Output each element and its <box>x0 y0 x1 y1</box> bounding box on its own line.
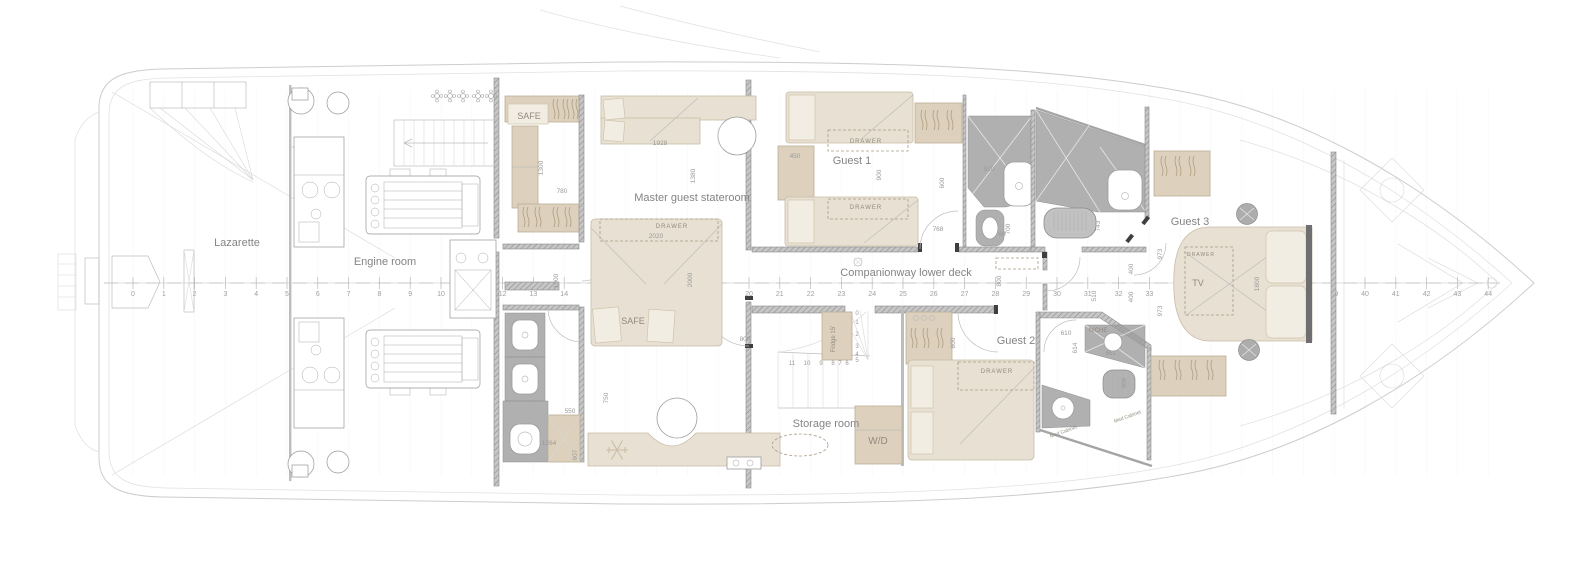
dim: 800 <box>950 337 957 348</box>
drawer-label: DRAWER <box>850 139 882 145</box>
dim: 68 <box>998 231 1006 238</box>
frame-number: 4 <box>254 291 258 298</box>
dim: 400 <box>1128 263 1135 274</box>
frame-number: 2 <box>193 291 197 298</box>
fuel-tank-port <box>294 137 344 247</box>
frame-number: 13 <box>530 291 538 298</box>
frame-number: 42 <box>1423 291 1431 298</box>
dim: 1800 <box>1254 276 1261 291</box>
dim: 973 <box>1157 248 1164 259</box>
bow-hatch-top <box>1360 158 1424 222</box>
frame-number: 8 <box>377 291 381 298</box>
engine-room-equipment <box>288 78 499 486</box>
bow-bulkhead <box>1331 152 1336 414</box>
dim: 768 <box>933 226 944 233</box>
room-label-engine-room: Engine room <box>354 256 416 268</box>
frame-number: 1 <box>162 291 166 298</box>
stair-step-number: 5 <box>855 358 859 364</box>
stern-stairs <box>150 82 253 182</box>
room-label-master: Master guest stateroom <box>634 192 750 204</box>
toilet-icon <box>1103 370 1135 398</box>
frame-number: 22 <box>807 291 815 298</box>
frame-number: 24 <box>868 291 876 298</box>
frame-number: 7 <box>347 291 351 298</box>
room-label-lazarette: Lazarette <box>214 237 260 249</box>
frame-number: 25 <box>899 291 907 298</box>
frame-number: 14 <box>560 291 568 298</box>
safe-label: SAFE <box>517 111 541 121</box>
fixture <box>727 457 761 469</box>
room-label-guest2: Guest 2 <box>997 335 1036 347</box>
dim: 700 <box>1005 223 1012 234</box>
frame-number: 26 <box>930 291 938 298</box>
dim: 510 <box>984 166 995 173</box>
frame-number: 21 <box>776 291 784 298</box>
dim: 900 <box>876 169 883 180</box>
safe-label: SAFE <box>621 316 645 326</box>
engine-room-stairs <box>394 120 498 166</box>
frame-number: 33 <box>1146 291 1154 298</box>
sink-icon <box>512 320 538 350</box>
dim: 400 <box>1128 291 1135 302</box>
deck-plan: 0123456789101112131415161718192021222324… <box>0 0 1580 562</box>
dim: 661 <box>1106 350 1117 357</box>
frame-number: 43 <box>1454 291 1462 298</box>
armchair <box>718 117 756 155</box>
guest1-bathroom <box>968 110 1035 247</box>
drawer-label: DRAWER <box>850 205 882 211</box>
dim: 614 <box>1072 342 1079 353</box>
frame-number: 28 <box>992 291 1000 298</box>
dayhead-door-arc <box>1046 257 1080 291</box>
sink-icon <box>512 364 538 394</box>
shelf <box>996 258 1038 269</box>
washer-dryer <box>855 406 902 464</box>
sink-icon <box>1004 162 1034 206</box>
frame-number: 40 <box>1361 291 1369 298</box>
med-cabinet-label: Med Cabinet <box>1113 409 1142 425</box>
fridge-label: Fridge 15' <box>831 326 837 353</box>
transom-locker <box>112 256 160 308</box>
stair-step-number: 11 <box>789 361 796 367</box>
stair-step-number: 8 <box>831 361 835 367</box>
stair-step-number: 0 <box>855 311 859 317</box>
headboard <box>1306 225 1312 343</box>
frame-number: 0 <box>131 291 135 298</box>
drawer-label: DRAWER <box>981 369 1013 375</box>
dim: 450 <box>790 153 801 160</box>
stair-landing <box>505 282 559 290</box>
stair-step-number: 3 <box>855 344 859 350</box>
dim: 1380 <box>690 168 697 183</box>
dim: 550 <box>565 408 576 415</box>
frame-number: 27 <box>961 291 969 298</box>
frame-number: 29 <box>1022 291 1030 298</box>
dim: 973 <box>1157 305 1164 316</box>
stair-step-number: 10 <box>804 361 811 367</box>
frame-number: 10 <box>437 291 445 298</box>
master-stateroom <box>588 80 780 488</box>
frame-number: 3 <box>223 291 227 298</box>
dim: 2020 <box>649 233 664 240</box>
dim: 2000 <box>687 272 694 287</box>
stair-step-number: 1 <box>855 320 859 326</box>
stool <box>1237 204 1258 225</box>
frame-number: 41 <box>1392 291 1400 298</box>
engine-port <box>366 169 480 234</box>
guest2-door-arc <box>958 312 998 352</box>
dim: 607 <box>572 449 579 460</box>
bath-wall <box>1031 110 1035 247</box>
dim: 800 <box>740 336 751 343</box>
frame-number: 12 <box>499 291 507 298</box>
frame-number: 30 <box>1053 291 1061 298</box>
bath-door-arc <box>548 308 582 342</box>
lazarette-bulkhead <box>289 85 291 481</box>
dim: 1300 <box>538 160 545 175</box>
room-label-companionway: Companionway lower deck <box>840 267 972 279</box>
engine-starboard <box>366 330 480 395</box>
stair-step-number: 6 <box>845 361 849 367</box>
toilet-icon <box>510 424 540 454</box>
closet-bulkhead <box>579 95 584 242</box>
niche-label: NICHE <box>1089 328 1108 334</box>
room-label-storage: Storage room <box>793 418 860 430</box>
drawer-label: DRAWER <box>1187 252 1215 258</box>
frame-number: 9 <box>408 291 412 298</box>
guest3-aft-wall <box>1145 107 1149 219</box>
dim: 510 <box>1091 290 1098 301</box>
frame-number: 23 <box>838 291 846 298</box>
wd-label: W/D <box>868 436 887 447</box>
frame-number: 5 <box>285 291 289 298</box>
shower-drain-icon <box>1052 397 1074 419</box>
room-label-guest1: Guest 1 <box>833 155 872 167</box>
frame-number: 44 <box>1484 291 1492 298</box>
dim: 780 <box>557 188 568 195</box>
dim: 610 <box>1061 330 1072 337</box>
dim: 600 <box>939 177 946 188</box>
dim: 1928 <box>653 140 668 147</box>
tv-label: TV <box>1192 278 1204 288</box>
dim: 1264 <box>542 440 557 447</box>
dim: 743 <box>1095 220 1102 231</box>
guest1-bath-wall <box>963 95 966 247</box>
transom-hatch <box>85 258 99 304</box>
fuel-tank-starboard <box>294 318 344 428</box>
frame-number: 32 <box>1115 291 1123 298</box>
dim: 750 <box>603 392 610 403</box>
dim: 1000 <box>553 273 560 288</box>
guest3-cabin <box>1151 151 1344 414</box>
dim: 800 <box>996 275 1003 286</box>
bathtub-icon <box>1044 208 1096 238</box>
sink-icon <box>1108 170 1142 210</box>
wardrobe <box>906 312 952 364</box>
fridge <box>822 312 852 360</box>
room-label-guest3: Guest 3 <box>1171 216 1210 228</box>
stool <box>1239 340 1260 361</box>
guest2-bath-wall <box>1036 312 1040 432</box>
drawer-label: DRAWER <box>656 224 688 230</box>
frame-number: 6 <box>316 291 320 298</box>
swim-ladder <box>58 254 76 310</box>
dim: 509 <box>1121 377 1128 388</box>
generator <box>450 240 496 318</box>
sink-icon <box>1104 333 1122 351</box>
bow-hatch-bottom <box>1360 344 1424 408</box>
wardrobe-aft <box>1151 356 1226 396</box>
